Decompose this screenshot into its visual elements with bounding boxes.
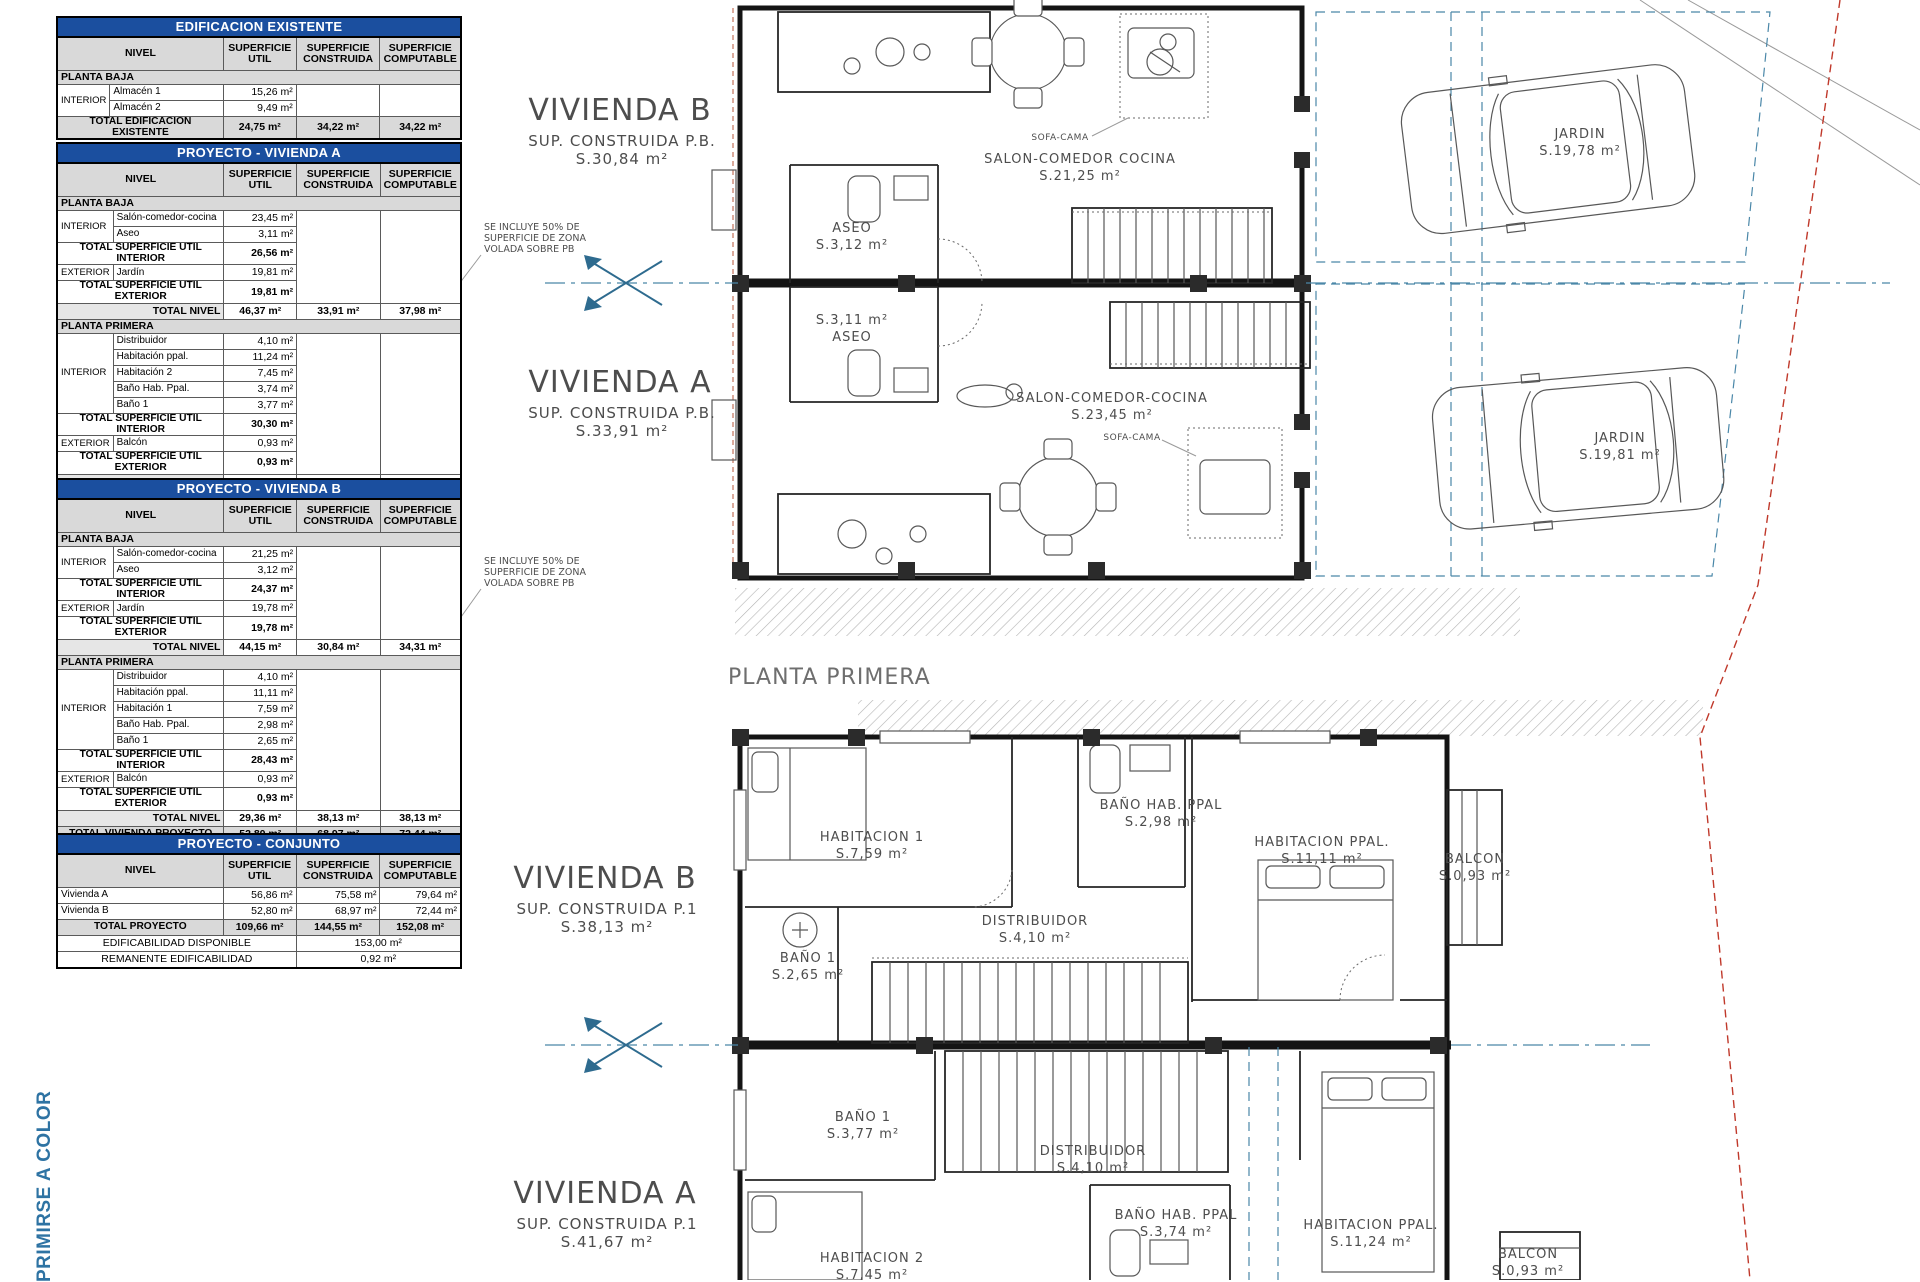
volada-note-line: SE INCLUYE 50% DE xyxy=(484,556,580,567)
cell: 9,49 m² xyxy=(223,101,296,117)
ground-hatch xyxy=(735,588,1520,636)
table-proyecto-vivienda-a: PROYECTO - VIVIENDA A NIVEL SUPERFICIE U… xyxy=(56,142,462,508)
bed-icon xyxy=(748,1192,862,1280)
cell: Almacén 1 xyxy=(110,85,223,101)
jardin-label: JARDIN xyxy=(1593,431,1645,446)
cell: 19,78 m² xyxy=(224,601,297,617)
cell: Balcón xyxy=(113,436,224,452)
room-area: S.3,11 m² xyxy=(816,313,888,328)
cell: 21,25 m² xyxy=(224,547,297,563)
total-cell: 26,56 m² xyxy=(224,243,297,265)
total-label: TOTAL SUPERFICIE UTIL EXTERIOR xyxy=(57,617,224,639)
cell: Habitación 2 xyxy=(113,365,224,381)
section-planta-primera: PLANTA PRIMERA xyxy=(57,319,461,333)
room-area: S.3,12 m² xyxy=(816,238,888,253)
section-planta-baja: PLANTA BAJA xyxy=(57,71,461,85)
empty-cell xyxy=(296,85,380,117)
sofa-icon xyxy=(1128,28,1194,78)
cell: Aseo xyxy=(113,227,224,243)
room-label: BAÑO 1 xyxy=(780,950,836,966)
zone-cell: INTERIOR xyxy=(57,85,110,117)
header-superficie-util: SUPERFICIE UTIL xyxy=(223,37,296,71)
total-proyecto-label: TOTAL PROYECTO xyxy=(57,920,223,936)
jardin-label: JARDIN xyxy=(1553,127,1605,142)
total-cell: 19,81 m² xyxy=(224,281,297,303)
room-area: S.2,65 m² xyxy=(772,968,844,983)
section-planta-primera: PLANTA PRIMERA xyxy=(57,655,461,669)
header-superficie-computable: SUPERFICIE COMPUTABLE xyxy=(380,499,461,533)
total-cell: 30,30 m² xyxy=(224,413,297,435)
room-area: S.2,98 m² xyxy=(1125,815,1197,830)
toilet-icon xyxy=(848,176,880,222)
hob-icon xyxy=(914,44,930,60)
cell: 75,58 m² xyxy=(296,888,380,904)
viv-b-p1-sub: SUP. CONSTRUIDA P.1 xyxy=(516,900,697,918)
sofa-label: SOFA-CAMA xyxy=(1103,433,1161,443)
empty-cell xyxy=(297,669,380,810)
sink-icon xyxy=(1150,1240,1188,1264)
room-label: BALCON xyxy=(1498,1247,1558,1262)
total-nivel-label: TOTAL NIVEL xyxy=(57,303,224,319)
empty-cell xyxy=(380,85,461,117)
header-superficie-computable: SUPERFICIE COMPUTABLE xyxy=(380,37,461,71)
header-nivel: NIVEL xyxy=(57,854,223,888)
room-label: SALON-COMEDOR-COCINA xyxy=(1016,391,1208,406)
sink-icon xyxy=(1130,745,1170,771)
room-area: S.0,93 m² xyxy=(1439,869,1511,884)
total-nivel-label: TOTAL NIVEL xyxy=(57,810,224,826)
window xyxy=(734,1090,746,1170)
cell: 56,86 m² xyxy=(223,888,296,904)
cell: 72,44 m² xyxy=(380,904,461,920)
cell: 4,10 m² xyxy=(224,669,297,685)
stair-treads xyxy=(1126,302,1286,368)
viv-a-p1-sub: SUP. CONSTRUIDA P.1 xyxy=(516,1215,697,1233)
total-cell: 0,93 m² xyxy=(224,452,297,474)
cell: Distribuidor xyxy=(113,333,224,349)
cell: Habitación ppal. xyxy=(113,685,224,701)
total-label: TOTAL SUPERFICIE UTIL INTERIOR xyxy=(57,413,224,435)
window xyxy=(734,790,746,870)
cell: 0,93 m² xyxy=(224,772,297,788)
header-nivel: NIVEL xyxy=(57,163,224,197)
header-superficie-util: SUPERFICIE UTIL xyxy=(223,854,296,888)
room-label: BAÑO HAB. PPAL xyxy=(1100,797,1223,813)
cell: 23,45 m² xyxy=(224,211,297,227)
table-proyecto-conjunto: PROYECTO - CONJUNTO NIVEL SUPERFICIE UTI… xyxy=(56,833,462,969)
leader-line xyxy=(1162,440,1196,456)
room-area: S.23,45 m² xyxy=(1071,408,1153,423)
total-cell: 46,37 m² xyxy=(224,303,297,319)
viv-b-p1-title: VIVIENDA B xyxy=(513,861,696,896)
floor-title: PLANTA PRIMERA xyxy=(728,665,931,690)
total-cell: 24,75 m² xyxy=(223,117,296,140)
room-label: SALON-COMEDOR COCINA xyxy=(984,152,1176,167)
header-superficie-construida: SUPERFICIE CONSTRUIDA xyxy=(296,854,380,888)
toilet-icon xyxy=(1110,1230,1140,1276)
volada-note-line: SUPERFICIE DE ZONA xyxy=(484,567,586,578)
window xyxy=(880,731,970,743)
cell: Baño 1 xyxy=(113,733,224,749)
cell: Baño Hab. Ppal. xyxy=(113,381,224,397)
header-superficie-construida: SUPERFICIE CONSTRUIDA xyxy=(297,499,380,533)
total-cell: 34,22 m² xyxy=(296,117,380,140)
room-label: ASEO xyxy=(832,330,872,345)
viv-b-pb-area: S.30,84 m² xyxy=(576,150,669,168)
volada-note-line: SE INCLUYE 50% DE xyxy=(484,222,580,233)
empty-cell xyxy=(297,333,380,474)
room-label: HABITACION 2 xyxy=(820,1251,924,1266)
cell: 2,98 m² xyxy=(224,717,297,733)
total-cell: 109,66 m² xyxy=(223,920,296,936)
section-planta-baja: PLANTA BAJA xyxy=(57,533,461,547)
room-label: DISTRIBUIDOR xyxy=(1040,1144,1146,1159)
site-boundary-line xyxy=(1640,0,1920,185)
cell: Almacén 2 xyxy=(110,101,223,117)
viv-a-pb-sub: SUP. CONSTRUIDA P.B. xyxy=(528,404,716,422)
kitchen-counter xyxy=(778,12,990,92)
table-title: PROYECTO - CONJUNTO xyxy=(57,834,461,854)
room-area: S.3,77 m² xyxy=(827,1127,899,1142)
room-area: S.4,10 m² xyxy=(999,931,1071,946)
viv-b-pb-sub: SUP. CONSTRUIDA P.B. xyxy=(528,132,716,150)
cell: Distribuidor xyxy=(113,669,224,685)
total-label: TOTAL SUPERFICIE UTIL EXTERIOR xyxy=(57,281,224,303)
empty-cell xyxy=(380,333,461,474)
room-area: S.4,10 m² xyxy=(1057,1161,1129,1176)
cell: 11,11 m² xyxy=(224,685,297,701)
plan-labels: VIVIENDA B SUP. CONSTRUIDA P.B. S.30,84 … xyxy=(456,93,1661,1280)
cell: Habitación 1 xyxy=(113,701,224,717)
sink-icon xyxy=(894,368,928,392)
room-area: S.0,93 m² xyxy=(1492,1264,1564,1279)
total-cell: 34,31 m² xyxy=(380,639,461,655)
header-superficie-computable: SUPERFICIE COMPUTABLE xyxy=(380,854,461,888)
room-area: S.7,45 m² xyxy=(836,1268,908,1280)
empty-cell xyxy=(380,547,461,640)
total-cell: 28,43 m² xyxy=(224,749,297,771)
stair-treads xyxy=(890,962,1160,1043)
volada-note-line: VOLADA SOBRE PB xyxy=(484,578,574,589)
window xyxy=(1240,731,1330,743)
room-label: ASEO xyxy=(832,221,872,236)
stairs xyxy=(1072,208,1272,283)
room-area: S.11,11 m² xyxy=(1281,852,1363,867)
table-title: PROYECTO - VIVIENDA A xyxy=(57,143,461,163)
total-cell: 38,13 m² xyxy=(297,810,380,826)
cell: Vivienda B xyxy=(57,904,223,920)
jardin-area: S.19,81 m² xyxy=(1579,448,1661,463)
total-cell: 33,91 m² xyxy=(297,303,380,319)
cell: 3,11 m² xyxy=(224,227,297,243)
edificabilidad-value: 153,00 m² xyxy=(296,936,461,952)
cell: Jardín xyxy=(113,265,224,281)
total-label: TOTAL SUPERFICIE UTIL INTERIOR xyxy=(57,749,224,771)
total-cell: 37,98 m² xyxy=(380,303,461,319)
stair-treads xyxy=(1088,208,1264,283)
total-label: TOTAL SUPERFICIE UTIL INTERIOR xyxy=(57,579,224,601)
room-label: DISTRIBUIDOR xyxy=(982,914,1088,929)
section-planta-baja: PLANTA BAJA xyxy=(57,197,461,211)
stairs xyxy=(872,962,1188,1043)
zone-cell: INTERIOR xyxy=(57,669,113,749)
room-label: HABITACION PPAL. xyxy=(1254,835,1389,850)
leader-line xyxy=(1092,118,1128,136)
total-label: TOTAL EDIFICACION EXISTENTE xyxy=(57,117,223,140)
sink-icon xyxy=(910,526,926,542)
toilet-icon xyxy=(1090,745,1120,793)
first-floor-plan xyxy=(545,700,1703,1280)
viv-a-p1-title: VIVIENDA A xyxy=(513,1176,696,1211)
cell: Baño 1 xyxy=(113,397,224,413)
total-cell: 144,55 m² xyxy=(296,920,380,936)
header-superficie-util: SUPERFICIE UTIL xyxy=(224,499,297,533)
cell: 19,81 m² xyxy=(224,265,297,281)
toilet-icon xyxy=(848,350,880,396)
total-nivel-label: TOTAL NIVEL xyxy=(57,639,224,655)
zone-cell: EXTERIOR xyxy=(57,601,113,617)
total-cell: 152,08 m² xyxy=(380,920,461,936)
cell: Salón-comedor-cocina xyxy=(113,547,224,563)
table-edificacion-existente: EDIFICACION EXISTENTE NIVEL SUPERFICIE U… xyxy=(56,16,462,140)
cell: 15,26 m² xyxy=(223,85,296,101)
cell: 0,93 m² xyxy=(224,436,297,452)
total-cell: 38,13 m² xyxy=(380,810,461,826)
table-title: EDIFICACION EXISTENTE xyxy=(57,17,461,37)
total-cell: 0,93 m² xyxy=(224,788,297,810)
meter-box xyxy=(712,170,736,230)
cell: 79,64 m² xyxy=(380,888,461,904)
sofa-label: SOFA-CAMA xyxy=(1031,133,1089,143)
hob-icon xyxy=(838,520,866,548)
cell: 3,74 m² xyxy=(224,381,297,397)
remanente-label: REMANENTE EDIFICABILIDAD xyxy=(57,952,296,969)
cell: 52,80 m² xyxy=(223,904,296,920)
cell: Balcón xyxy=(113,772,224,788)
jardin-area: S.19,78 m² xyxy=(1539,144,1621,159)
zone-cell: EXTERIOR xyxy=(57,772,113,788)
zone-cell: INTERIOR xyxy=(57,547,113,579)
total-cell: 19,78 m² xyxy=(224,617,297,639)
kitchen-counter xyxy=(778,494,990,574)
car-icon xyxy=(1429,358,1727,538)
empty-cell xyxy=(380,669,461,810)
cell: 2,65 m² xyxy=(224,733,297,749)
cell: 11,24 m² xyxy=(224,349,297,365)
sink-icon xyxy=(894,176,928,200)
ground-floor-plan xyxy=(545,0,1920,636)
site-boundary-line xyxy=(1688,0,1920,130)
room-area: S.3,74 m² xyxy=(1140,1225,1212,1240)
room-label: BALCON xyxy=(1445,852,1505,867)
cell: Salón-comedor-cocina xyxy=(113,211,224,227)
cell: 7,59 m² xyxy=(224,701,297,717)
shower-icon xyxy=(792,922,808,938)
hob-icon xyxy=(876,38,904,66)
cell: Habitación ppal. xyxy=(113,349,224,365)
zone-cell: EXTERIOR xyxy=(57,436,113,452)
edificabilidad-label: EDIFICABILIDAD DISPONIBLE xyxy=(57,936,296,952)
empty-cell xyxy=(297,547,380,640)
room-area: S.11,24 m² xyxy=(1330,1235,1412,1250)
zone-cell: INTERIOR xyxy=(57,211,113,243)
total-cell: 29,36 m² xyxy=(224,810,297,826)
total-cell: 24,37 m² xyxy=(224,579,297,601)
cell: 4,10 m² xyxy=(224,333,297,349)
dining-table-icon xyxy=(1000,439,1116,555)
cell: Aseo xyxy=(113,563,224,579)
room-label: HABITACION 1 xyxy=(820,830,924,845)
volada-note-line: VOLADA SOBRE PB xyxy=(484,244,574,255)
total-cell: 44,15 m² xyxy=(224,639,297,655)
room-label: BAÑO HAB. PPAL xyxy=(1115,1207,1238,1223)
total-label: TOTAL SUPERFICIE UTIL INTERIOR xyxy=(57,243,224,265)
cell: 68,97 m² xyxy=(296,904,380,920)
zone-cell: EXTERIOR xyxy=(57,265,113,281)
viv-a-p1-area: S.41,67 m² xyxy=(561,1233,654,1251)
cell: Baño Hab. Ppal. xyxy=(113,717,224,733)
jardin-a-boundary xyxy=(1316,284,1745,576)
door-arc xyxy=(938,239,982,283)
total-label: TOTAL SUPERFICIE UTIL EXTERIOR xyxy=(57,452,224,474)
total-cell: 34,22 m² xyxy=(380,117,461,140)
header-nivel: NIVEL xyxy=(57,37,223,71)
cell: Jardín xyxy=(113,601,224,617)
viv-a-pb-title: VIVIENDA A xyxy=(528,365,711,400)
bed-icon xyxy=(1258,860,1393,1000)
viv-b-pb-title: VIVIENDA B xyxy=(528,93,711,128)
plot-boundary-red xyxy=(1700,0,1840,1280)
table-title: PROYECTO - VIVIENDA B xyxy=(57,479,461,499)
header-superficie-computable: SUPERFICIE COMPUTABLE xyxy=(380,163,461,197)
total-label: TOTAL SUPERFICIE UTIL EXTERIOR xyxy=(57,788,224,810)
header-superficie-construida: SUPERFICIE CONSTRUIDA xyxy=(296,37,380,71)
sink-icon xyxy=(844,58,860,74)
total-cell: 30,84 m² xyxy=(297,639,380,655)
table-proyecto-vivienda-b: PROYECTO - VIVIENDA B NIVEL SUPERFICIE U… xyxy=(56,478,462,844)
cell: 3,77 m² xyxy=(224,397,297,413)
viv-b-p1-area: S.38,13 m² xyxy=(561,918,654,936)
print-color-note: PRIMIRSE A COLOR xyxy=(34,1091,56,1282)
remanente-value: 0,92 m² xyxy=(296,952,461,969)
header-nivel: NIVEL xyxy=(57,499,224,533)
empty-cell xyxy=(380,211,461,304)
jardin-b-boundary xyxy=(1316,12,1770,262)
person-icon xyxy=(957,384,1022,407)
viv-a-pb-area: S.33,91 m² xyxy=(576,422,669,440)
empty-cell xyxy=(297,211,380,304)
volada-note-line: SUPERFICIE DE ZONA xyxy=(484,233,586,244)
zone-cell: INTERIOR xyxy=(57,333,113,413)
room-area: S.21,25 m² xyxy=(1039,169,1121,184)
door-arc xyxy=(972,870,1012,907)
cell: 3,12 m² xyxy=(224,563,297,579)
room-label: BAÑO 1 xyxy=(835,1109,891,1125)
balcony xyxy=(1447,790,1502,945)
room-label: HABITACION PPAL. xyxy=(1303,1218,1438,1233)
door-arc xyxy=(938,302,982,346)
header-superficie-util: SUPERFICIE UTIL xyxy=(224,163,297,197)
header-superficie-construida: SUPERFICIE CONSTRUIDA xyxy=(297,163,380,197)
stairs xyxy=(1110,302,1310,368)
sofa-icon xyxy=(1200,460,1270,514)
cell: 7,45 m² xyxy=(224,365,297,381)
room-area: S.7,59 m² xyxy=(836,847,908,862)
cell: Vivienda A xyxy=(57,888,223,904)
hob-icon xyxy=(876,548,892,564)
